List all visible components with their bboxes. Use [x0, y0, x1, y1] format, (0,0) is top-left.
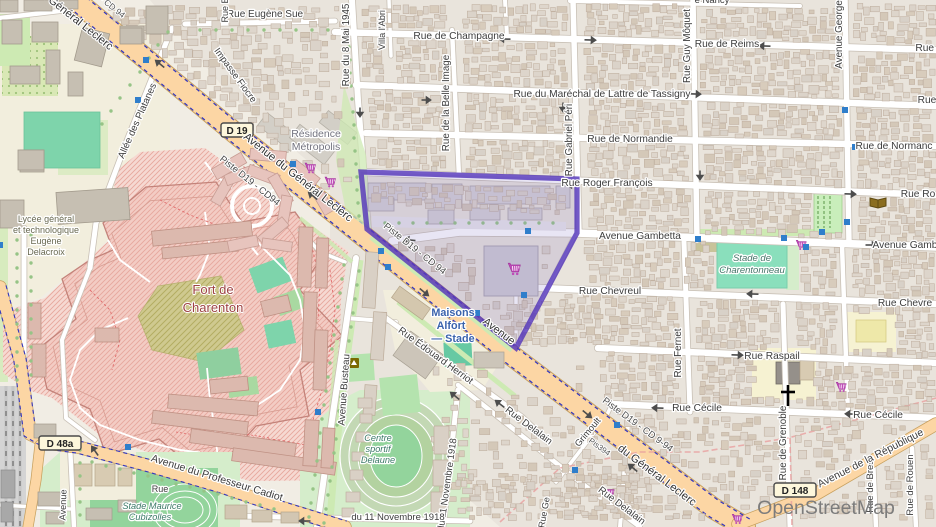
svg-text:du 11 Novembre 1918: du 11 Novembre 1918: [351, 512, 444, 523]
svg-text:Rue: Rue: [918, 95, 936, 106]
svg-text:Lycée général: Lycée général: [18, 214, 74, 224]
svg-text:Avenue Georges: Avenue Georges: [834, 0, 845, 69]
svg-text:Rue Roger François: Rue Roger François: [561, 178, 652, 189]
svg-text:Rue Cécile: Rue Cécile: [853, 410, 903, 421]
svg-text:Rue E: Rue E: [220, 0, 230, 23]
svg-text:Avenue Gamb: Avenue Gamb: [873, 240, 936, 251]
svg-text:Alfort: Alfort: [437, 320, 466, 332]
svg-text:Rue Fernet: Rue Fernet: [673, 328, 684, 377]
svg-text:Rue Cécile: Rue Cécile: [672, 403, 722, 414]
svg-text:Rue Ro: Rue Ro: [901, 189, 936, 200]
svg-text:Rue de Grenoble: Rue de Grenoble: [778, 405, 789, 480]
svg-text:Delaune: Delaune: [361, 455, 395, 465]
svg-text:Rue du Maréchal de Lattre de T: Rue du Maréchal de Lattre de Tassigny: [513, 89, 691, 100]
svg-text:Eugène: Eugène: [30, 236, 61, 246]
svg-text:Rue Eugène Sue: Rue Eugène Sue: [227, 9, 304, 20]
svg-text:Métropolis: Métropolis: [292, 141, 340, 153]
svg-text:Villa l'Abri: Villa l'Abri: [377, 10, 387, 50]
svg-text:Charenton: Charenton: [183, 300, 244, 315]
svg-text:Delacroix: Delacroix: [27, 247, 65, 257]
svg-text:Stade de: Stade de: [733, 253, 771, 264]
svg-text:Rue Guy Môquet: Rue Guy Môquet: [682, 9, 693, 83]
svg-text:sportif: sportif: [365, 444, 391, 454]
svg-text:Rue Raspail: Rue Raspail: [744, 351, 800, 362]
svg-text:D 148: D 148: [782, 486, 809, 497]
svg-text:Maisons: Maisons: [431, 307, 474, 319]
svg-text:Avenue Gambetta: Avenue Gambetta: [599, 231, 681, 242]
svg-text:Centre: Centre: [364, 433, 392, 443]
svg-text:Rue Chevre: Rue Chevre: [878, 298, 933, 309]
svg-text:D 48a: D 48a: [47, 439, 74, 450]
svg-text:Rue de Champagne: Rue de Champagne: [413, 31, 505, 42]
svg-text:OpenStreetMap: OpenStreetMap: [757, 497, 895, 519]
svg-text:Rue d: Rue d: [915, 43, 936, 54]
svg-text:Avenue: Avenue: [57, 489, 68, 520]
svg-text:Rue Chevreul: Rue Chevreul: [579, 286, 641, 297]
svg-text:Rue Gabriel Péri: Rue Gabriel Péri: [564, 104, 575, 176]
svg-text:Cubizolles: Cubizolles: [129, 512, 172, 522]
svg-text:e Nancy: e Nancy: [695, 0, 730, 6]
svg-text:Rue de la Belle Image: Rue de la Belle Image: [441, 54, 452, 151]
svg-text:Charentonneau: Charentonneau: [719, 265, 785, 276]
svg-text:Rue de Reims: Rue de Reims: [695, 39, 760, 50]
svg-text:et technologique: et technologique: [13, 225, 79, 235]
svg-text:— Stade: — Stade: [431, 333, 474, 345]
svg-text:Rue de Normandie: Rue de Normandie: [587, 134, 673, 145]
svg-text:Rue de Rouen: Rue de Rouen: [905, 454, 916, 515]
svg-text:Rue: Rue: [152, 484, 169, 494]
svg-text:Rue de Normanc: Rue de Normanc: [855, 141, 932, 152]
svg-text:Stade Maurice: Stade Maurice: [122, 501, 181, 511]
svg-text:Fort de: Fort de: [192, 282, 233, 297]
svg-text:Rue du 8 Mai 1945: Rue du 8 Mai 1945: [341, 3, 352, 86]
svg-text:Résidence: Résidence: [291, 128, 341, 140]
